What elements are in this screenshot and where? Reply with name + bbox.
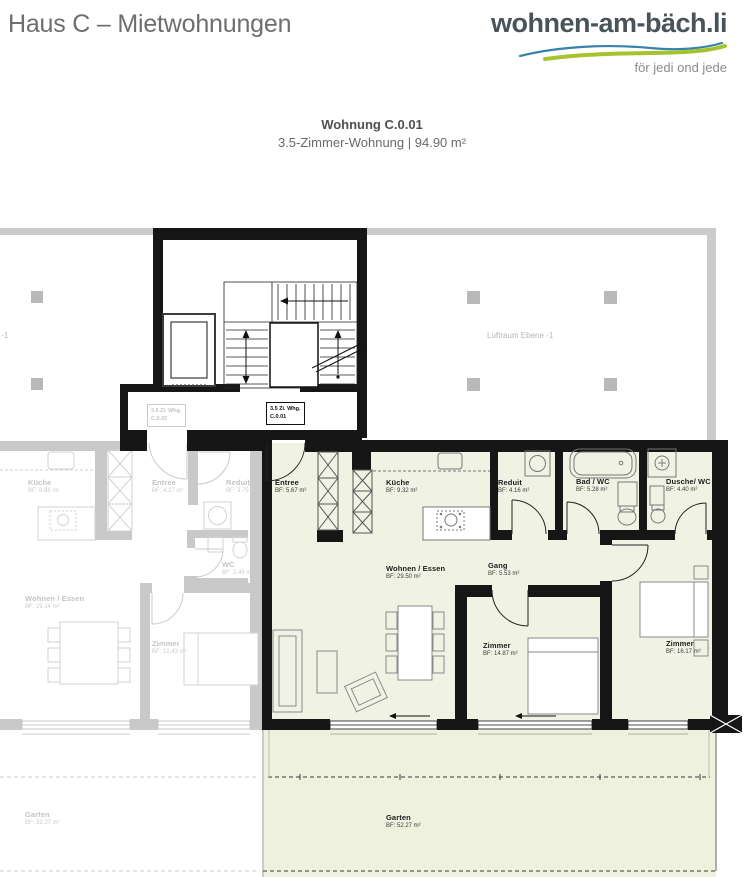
room-label-zimmer-1: Zimmer BF: 14.87 m²	[483, 641, 518, 659]
floorplan-drawing	[0, 0, 744, 877]
room-label-bad-wc: Bad / WC BF: 5.28 m²	[576, 477, 610, 495]
elevator	[163, 314, 215, 386]
void-label-left-clipped: Luftraum Ebene -1	[0, 331, 8, 340]
room-label-gang: Gang BF: 5.53 m²	[488, 561, 519, 579]
neighbor-label-wc: WC BF: 2.45 m²	[222, 560, 253, 578]
room-label-dusche-wc: Dusche/ WC BF: 4.40 m²	[666, 477, 711, 495]
neighbor-label-zimmer: Zimmer BF: 12.43 m²	[152, 639, 187, 657]
room-label-reduit: Reduit BF: 4.16 m²	[498, 478, 529, 496]
void-label-right: Luftraum Ebene -1	[487, 331, 553, 340]
unit-badge-c001-line2: C.0.01	[270, 413, 301, 421]
floorplan-page: { "header": { "title": "Haus C – Mietwoh…	[0, 0, 744, 877]
unit-badge-c002-line2: C.0.02	[151, 415, 182, 423]
neighbor-label-reduit: Reduit BF: 3.75 m²	[226, 478, 257, 496]
room-label-zimmer-2: Zimmer BF: 16.17 m²	[666, 639, 701, 657]
section-hatch	[710, 715, 742, 733]
neighbor-label-kueche: Küche BF: 8.86 m²	[28, 478, 59, 496]
neighbor-label-garten: Garten BF: 32.27 m²	[25, 810, 60, 828]
neighbor-label-wohnen-essen: Wohnen / Essen BF: 29.14 m²	[25, 594, 84, 612]
room-label-wohnen-essen: Wohnen / Essen BF: 29.50 m²	[386, 564, 445, 582]
room-label-entree: Entree BF: 5.67 m²	[275, 478, 306, 496]
room-label-garten: Garten BF: 52.27 m²	[386, 813, 421, 831]
room-label-kueche: Küche BF: 9.32 m²	[386, 478, 417, 496]
unit-badge-c002-line1: 3.5 Zi. Whg.	[151, 407, 182, 415]
unit-badge-c002: 3.5 Zi. Whg. C.0.02	[147, 404, 186, 427]
neighbor-label-entree: Entree BF: 4.27 m²	[152, 478, 183, 496]
unit-badge-c001: 3.5 Zi. Whg. C.0.01	[266, 402, 305, 425]
unit-badge-c001-line1: 3.5 Zi. Whg.	[270, 405, 301, 413]
